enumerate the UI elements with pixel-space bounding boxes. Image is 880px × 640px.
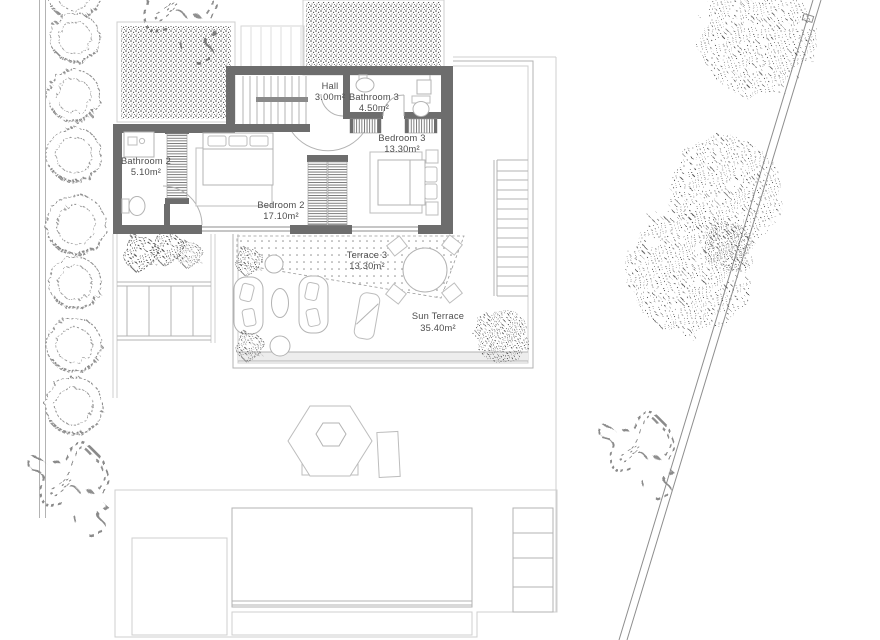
garden-tree-right-bottom [606,413,673,480]
bedroom3-furniture [370,150,438,215]
planter-area [113,233,215,398]
room-label-sunterrace-name: Sun Terrace [412,311,464,321]
bush [49,257,101,309]
room-label-terrace3-area: 13.30m² [349,261,385,271]
toilet-bowl [129,197,145,216]
terrace-external-stair [494,160,528,296]
hedge-bushes [45,0,106,435]
stair-handrail [256,97,308,102]
garden-tree-left-bottom [36,444,108,516]
shower-drain [139,138,144,143]
wall-bath3-bottom-right [404,112,453,119]
wall-hall-bottom [226,124,310,132]
left-boundary-lines [40,0,46,518]
gravel-bed-left [121,26,231,119]
room-label-hall-area: 3.00m² [315,92,345,102]
terrace-corner-bush [475,309,529,363]
room-label-bedroom2-name: Bedroom 2 [257,200,304,210]
shower-head [417,80,431,94]
terrace-plant [236,333,263,360]
wall-left [113,124,122,234]
bush [47,318,102,373]
deck-panel [132,538,227,635]
planter-bush [178,243,203,268]
bush [46,195,106,255]
room-label-sunterrace-area: 35.40m² [420,323,456,333]
parasol-canopy [288,406,372,476]
round-planter-pot [270,336,290,356]
parasol-set [288,406,400,477]
bed [378,160,425,205]
floor-plan-svg: Hall 3.00m² Bathroom 3 4.50m² Bedroom 3 … [0,0,880,640]
ghost-stair [241,26,304,67]
room-label-bedroom3-name: Bedroom 3 [378,133,425,143]
wall-bottom-3 [418,225,453,234]
pool-area [115,490,557,637]
wall-right [441,66,453,234]
bedroom2-furniture [196,133,273,206]
staircase [243,76,308,124]
lounger-cushion [242,308,257,327]
pillow [425,184,437,199]
bush [48,70,100,122]
pool-steps [513,508,553,612]
wall-bath2-stub [164,204,170,225]
shower-mixer [128,137,137,145]
wardrobe-bedroom3-right [405,119,437,133]
gravel-bed-top [306,2,441,72]
pillow [250,136,268,146]
bush [47,128,102,183]
pillow [229,136,247,146]
wardrobe-bedroom3-left [350,119,381,133]
tree-right-core [701,221,751,271]
sink-basin [356,78,374,92]
room-label-bedroom3-area: 13.30m² [384,144,420,154]
pool [232,508,472,607]
terrace-plant [236,249,262,275]
room-label-bathroom3-area: 4.50m² [359,103,389,113]
pool-infinity-edge [232,601,472,605]
pool-overflow-channel [232,612,472,635]
beach-towel [353,292,381,341]
dining-table [403,248,447,292]
stippled-trees [628,0,815,334]
wall-bath3-bottom-left [343,112,383,119]
pillow [425,167,437,182]
room-label-bedroom2-area: 17.10m² [263,211,299,221]
side-table [272,289,289,318]
toilet-bowl [413,102,429,117]
bush [45,377,102,434]
bush [50,13,99,62]
nightstand [426,150,438,163]
garden-lounger [377,431,400,477]
pillow [208,136,226,146]
tree-top-right [699,0,815,96]
room-label-bathroom2-name: Bathroom 2 [121,156,171,166]
room-label-bathroom3-name: Bathroom 3 [349,92,399,102]
door-arc-bedroom2 [292,132,364,151]
toilet-cistern [122,199,129,213]
room-label-hall-name: Hall [322,81,339,91]
wall-bottom-2 [290,225,352,234]
room-label-terrace3-name: Terrace 3 [347,250,388,260]
round-planter-pot [265,255,283,273]
floor-plan-canvas: Hall 3.00m² Bathroom 3 4.50m² Bedroom 3 … [0,0,880,640]
room-label-bathroom2-area: 5.10m² [131,167,161,177]
wardrobe-between-bedrooms [307,155,348,225]
nightstand [426,202,438,215]
wall-top [226,66,452,75]
wall-bottom-1 [113,225,202,234]
wall-stair-left [226,66,235,132]
pool-deck-outline [115,490,557,637]
